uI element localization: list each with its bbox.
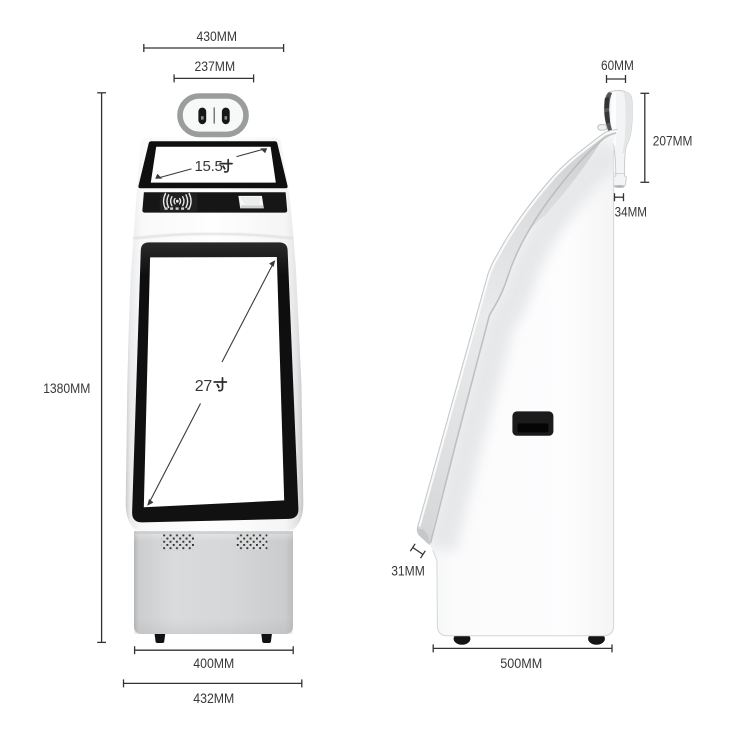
svg-text:237MM: 237MM <box>195 59 236 74</box>
svg-text:400MM: 400MM <box>193 656 234 671</box>
svg-text:1380MM: 1380MM <box>43 381 90 396</box>
svg-text:207MM: 207MM <box>653 133 693 148</box>
svg-text:432MM: 432MM <box>193 691 234 706</box>
svg-text:430MM: 430MM <box>197 29 238 44</box>
svg-text:27: 27 <box>195 378 213 395</box>
svg-text:60MM: 60MM <box>601 58 634 73</box>
svg-text:34MM: 34MM <box>615 204 647 219</box>
svg-text:15.5: 15.5 <box>195 158 223 175</box>
svg-text:31MM: 31MM <box>391 564 425 579</box>
svg-text:500MM: 500MM <box>500 656 542 671</box>
